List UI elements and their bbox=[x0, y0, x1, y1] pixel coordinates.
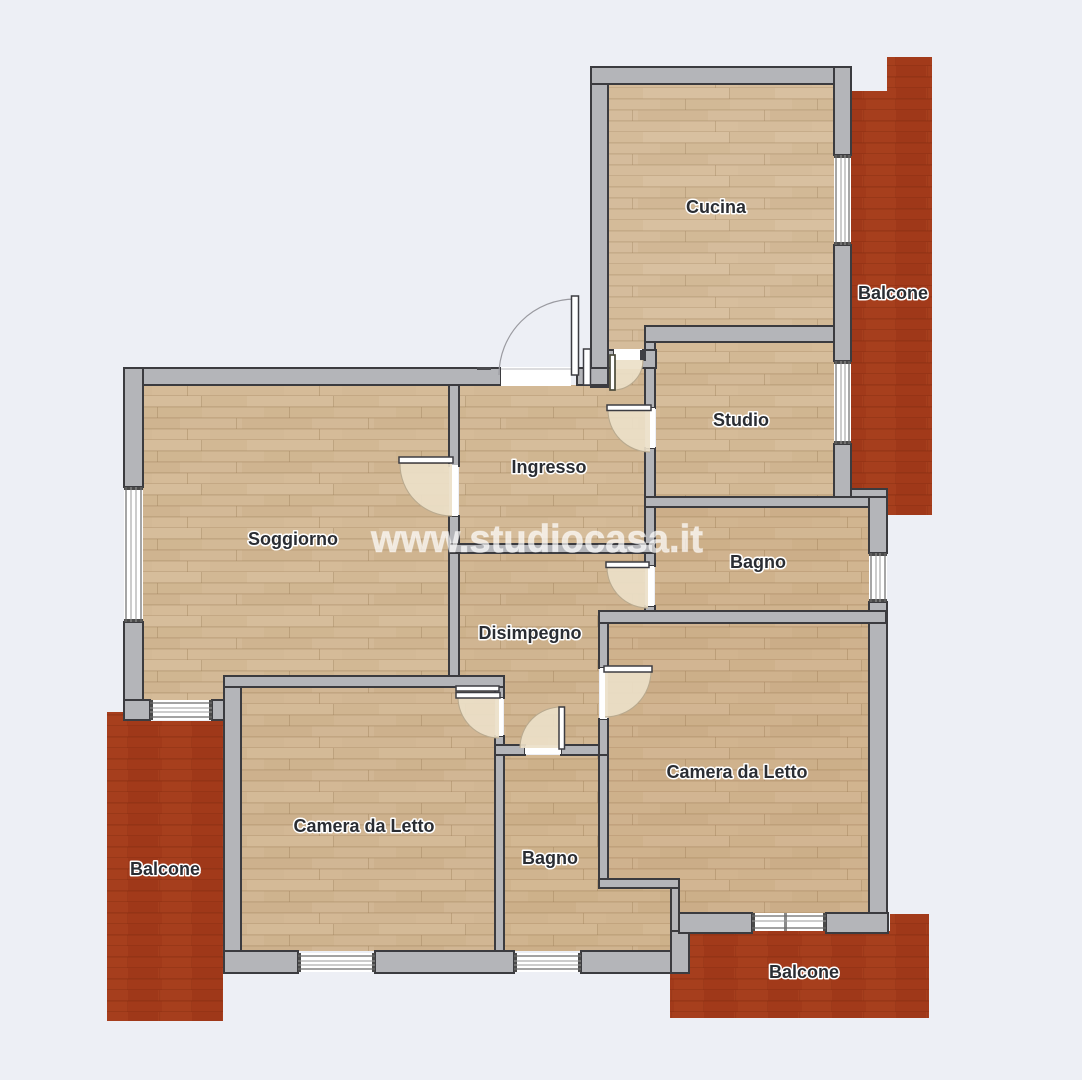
svg-text:Camera da Letto: Camera da Letto bbox=[293, 816, 434, 836]
svg-text:Balcone: Balcone bbox=[858, 283, 928, 303]
svg-text:Bagno: Bagno bbox=[730, 552, 786, 572]
svg-text:Camera da Letto: Camera da Letto bbox=[666, 762, 807, 782]
svg-text:Balcone: Balcone bbox=[769, 962, 839, 982]
svg-text:Ingresso: Ingresso bbox=[511, 457, 586, 477]
svg-text:Studio: Studio bbox=[713, 410, 769, 430]
svg-text:Bagno: Bagno bbox=[522, 848, 578, 868]
svg-text:Balcone: Balcone bbox=[130, 859, 200, 879]
svg-text:www.studiocasa.it: www.studiocasa.it bbox=[370, 518, 703, 561]
svg-text:Soggiorno: Soggiorno bbox=[248, 529, 338, 549]
svg-text:Disimpegno: Disimpegno bbox=[478, 623, 581, 643]
svg-text:Cucina: Cucina bbox=[686, 197, 747, 217]
